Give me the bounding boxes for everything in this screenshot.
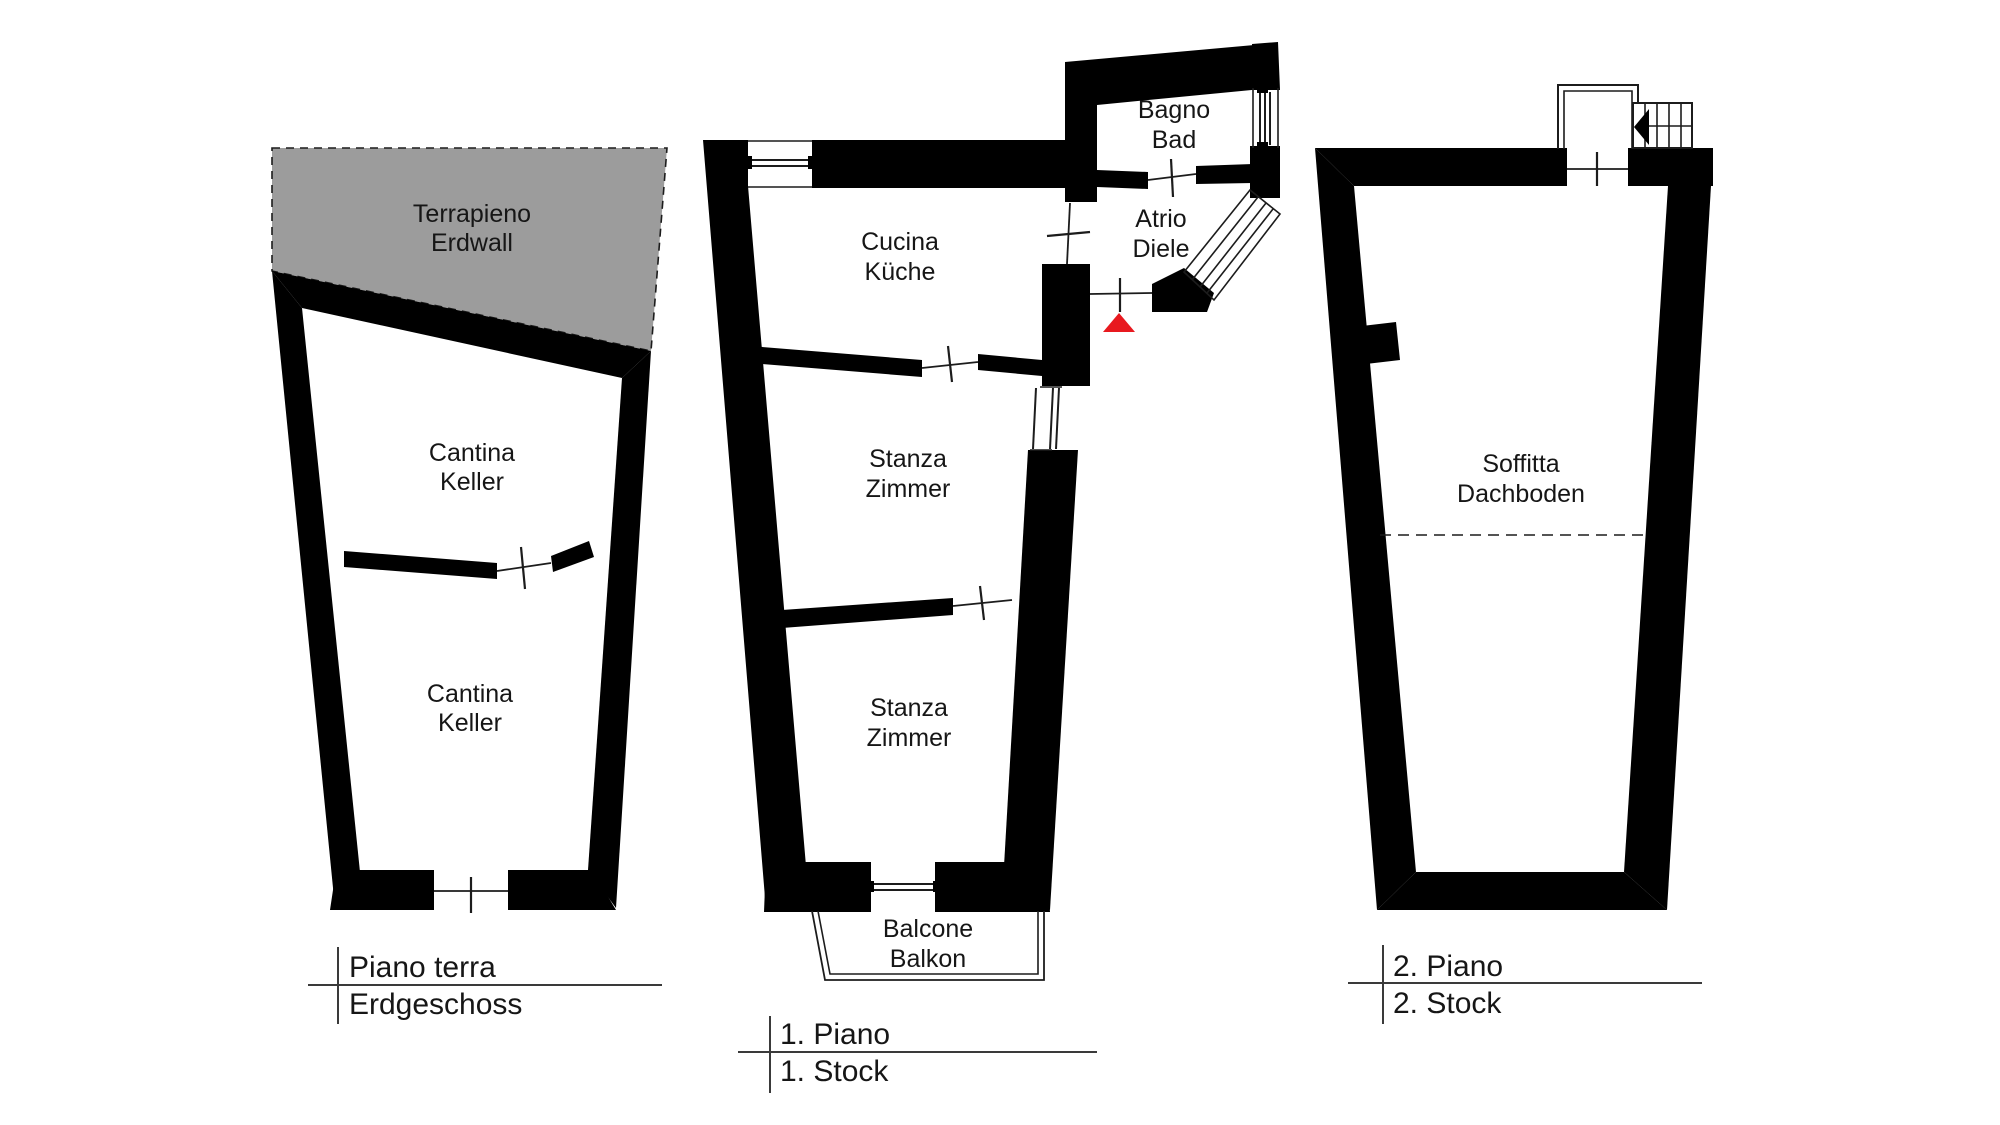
room-name-it: Cucina: [861, 228, 939, 256]
room-label-cantina-upper: Cantina Keller: [429, 439, 515, 496]
wall-segment: [782, 598, 953, 628]
window-symbol-room1: [1030, 387, 1062, 450]
floor-caption-ground: Piano terra Erdgeschoss: [308, 947, 662, 1024]
wall-segment: [1628, 148, 1713, 186]
window-pane-line: [1033, 388, 1036, 449]
wall-segment: [1004, 450, 1078, 910]
room-name-it: Balcone: [883, 915, 973, 943]
wall-segment: [272, 271, 360, 908]
room-label-stanza-upper: Stanza Zimmer: [866, 445, 951, 503]
plan-ground-floor: Terrapieno Erdwall Cantina Keller Cantin…: [272, 148, 667, 1024]
floor-caption-first: 1. Piano 1. Stock: [738, 1016, 1097, 1093]
room-label-balcone: Balcone Balkon: [883, 915, 973, 973]
entrance-arrow-marker: [1103, 313, 1135, 332]
wall-segment: [588, 351, 651, 908]
window-end-cap: [746, 156, 752, 169]
room-name-de: Küche: [865, 258, 936, 286]
wall-segment: [1250, 146, 1280, 198]
room-name-de: Zimmer: [867, 724, 952, 752]
wall-segment: [764, 862, 871, 912]
wall-segment: [330, 870, 434, 910]
wall-segment: [812, 140, 1067, 188]
wall-segment: [978, 354, 1042, 376]
dormer-outer-line: [1558, 85, 1638, 149]
floor-label-line2: Erdgeschoss: [349, 988, 522, 1021]
wall-segment: [1315, 148, 1416, 910]
room-label-cantina-lower: Cantina Keller: [427, 680, 513, 737]
dormer-inner-line: [1564, 91, 1632, 149]
window-pane-line: [1207, 209, 1273, 293]
window-end-cap: [1257, 142, 1268, 147]
window-pane-line: [1050, 388, 1053, 449]
room-name-it: Terrapieno: [413, 200, 531, 228]
room-name-it: Cantina: [427, 680, 513, 708]
room-label-bagno: Bagno Bad: [1138, 96, 1210, 154]
floor-label-line2: 2. Stock: [1393, 987, 1502, 1020]
plan-second-floor: Soffitta Dachboden 2. Piano 2. Stock: [1315, 85, 1713, 1024]
room-name-de: Erdwall: [431, 229, 513, 257]
wall-segment: [1152, 268, 1214, 312]
wall-segment: [750, 346, 922, 377]
floor-plan-sheet: Terrapieno Erdwall Cantina Keller Cantin…: [0, 0, 2000, 1125]
room-label-soffitta: Soffitta Dachboden: [1457, 450, 1585, 508]
floor-label-line2: 1. Stock: [780, 1055, 889, 1088]
wall-segment: [1042, 264, 1090, 386]
room-name-de: Diele: [1133, 235, 1190, 263]
window-symbol-balcony-door: [869, 881, 938, 892]
wall-segment: [1252, 42, 1280, 90]
wall-segment: [1624, 186, 1711, 910]
room-name-it: Stanza: [870, 694, 948, 722]
room-name-it: Cantina: [429, 439, 515, 467]
wall-segment: [1315, 148, 1567, 186]
room-name-de: Keller: [440, 468, 504, 496]
window-pane-line: [1192, 197, 1258, 280]
room-name-de: Dachboden: [1457, 480, 1585, 508]
wall-segment: [1196, 164, 1253, 184]
door-tick: [1171, 159, 1173, 197]
window-symbol-kitchen: [746, 141, 814, 187]
floor-caption-second: 2. Piano 2. Stock: [1348, 945, 1702, 1024]
window-end-cap: [808, 156, 814, 169]
floor-label-line1: 1. Piano: [780, 1018, 890, 1051]
room-name-it: Stanza: [869, 445, 947, 473]
dormer-hatch-outline: [1558, 85, 1638, 149]
window-symbol-bathroom: [1253, 88, 1278, 148]
room-label-atrio: Atrio Diele: [1133, 205, 1190, 263]
wall-segment: [1362, 322, 1400, 364]
plan-first-floor: Cucina Küche Bagno Bad Atrio Diele Stanz…: [703, 42, 1280, 1093]
wall-segment: [344, 551, 497, 579]
wall-segment: [703, 140, 806, 910]
window-end-cap: [1257, 88, 1268, 93]
room-label-stanza-lower: Stanza Zimmer: [867, 694, 952, 752]
room-name-it: Bagno: [1138, 96, 1210, 124]
floor-label-line1: Piano terra: [349, 951, 496, 984]
room-name-de: Keller: [438, 709, 502, 737]
wall-segment: [1377, 872, 1667, 910]
room-name-de: Zimmer: [866, 475, 951, 503]
room-name-de: Balkon: [890, 945, 966, 973]
room-name-de: Bad: [1152, 126, 1196, 154]
floor-label-line1: 2. Piano: [1393, 950, 1503, 983]
staircase-symbol: [1633, 103, 1692, 148]
wall-segment: [1097, 170, 1148, 189]
window-end-cap: [933, 881, 938, 892]
wall-segment: [935, 862, 1050, 912]
window-end-cap: [869, 881, 874, 892]
floor-plan-drawing: Terrapieno Erdwall Cantina Keller Cantin…: [0, 0, 2000, 1125]
room-label-cucina: Cucina Küche: [861, 228, 939, 286]
room-name-it: Soffitta: [1482, 450, 1559, 478]
room-name-it: Atrio: [1135, 205, 1186, 233]
wall-segment: [551, 541, 594, 572]
window-pane-line: [1056, 388, 1059, 449]
